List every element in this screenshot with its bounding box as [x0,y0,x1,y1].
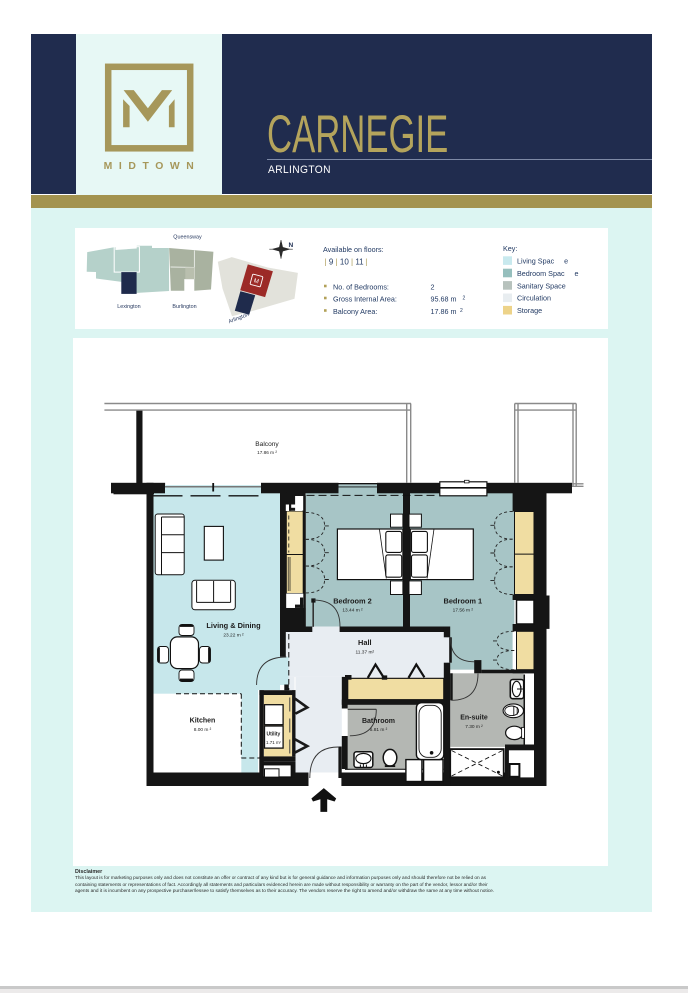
svg-text:Balcony: Balcony [255,441,279,448]
svg-text:Storage: Storage [517,306,542,315]
svg-text:| 9 | 10 | 11 |: | 9 | 10 | 11 | [323,257,367,266]
svg-text:Burlington: Burlington [172,304,196,310]
svg-text:Key:: Key: [503,244,517,253]
svg-text:13.44 m ²: 13.44 m ² [342,607,363,613]
svg-text:7.30 m ²: 7.30 m ² [465,724,483,730]
svg-text:5.81 m ²: 5.81 m ² [370,726,388,732]
svg-text:1.71 m²: 1.71 m² [266,739,282,744]
svg-text:Queensway: Queensway [173,234,202,240]
svg-text:Balcony Area:: Balcony Area: [333,306,377,315]
svg-text:No. of Bedrooms:: No. of Bedrooms: [333,282,389,291]
svg-text:Living Spac e: Living Spac e [517,256,568,265]
svg-text:Utility: Utility [266,731,280,737]
svg-text:Lexington: Lexington [117,304,140,310]
svg-text:Kitchen: Kitchen [190,717,216,724]
svg-text:11.37 m²: 11.37 m² [356,649,375,655]
svg-text:23.22 m ²: 23.22 m ² [223,632,244,638]
svg-text:Hall: Hall [358,638,372,647]
svg-text:Bathroom: Bathroom [362,717,395,724]
svg-text:17.86 m2: 17.86 m2 [430,306,462,315]
svg-text:Living & Dining: Living & Dining [206,621,261,630]
svg-text:Bedroom 2: Bedroom 2 [333,596,372,605]
svg-text:95.68 m2: 95.68 m2 [430,294,465,303]
svg-text:Circulation: Circulation [517,293,551,302]
svg-text:Sanitary Space: Sanitary Space [517,281,566,290]
svg-text:8.00 m ²: 8.00 m ² [194,727,212,733]
svg-text:MIDTOWN: MIDTOWN [104,161,201,172]
svg-text:N: N [288,242,293,249]
svg-text:2: 2 [430,282,434,291]
svg-text:Available on floors:: Available on floors: [323,245,384,254]
svg-text:17.56 m ²: 17.56 m ² [453,607,474,613]
svg-text:En-suite: En-suite [460,714,488,721]
svg-text:Bedroom Spac e: Bedroom Spac e [517,268,579,277]
svg-text:Bedroom 1: Bedroom 1 [443,596,482,605]
svg-text:17.86 m ²: 17.86 m ² [257,450,277,455]
svg-text:Gross Internal Area:: Gross Internal Area: [333,294,397,303]
